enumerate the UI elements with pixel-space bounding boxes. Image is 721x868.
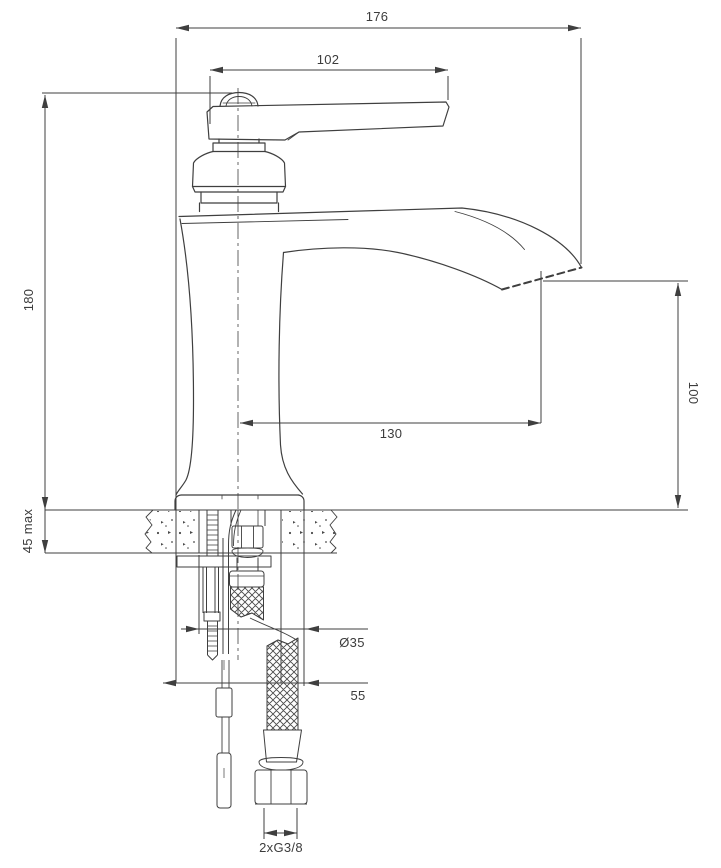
handle-length-label: 102	[317, 52, 340, 67]
dim-body-height	[42, 93, 232, 553]
body-height-label: 180	[21, 289, 36, 312]
dim-hose-thread	[264, 808, 297, 839]
dim-spout-height	[543, 281, 688, 508]
aerator-face	[502, 268, 582, 290]
hose-ferrule-top	[230, 571, 265, 587]
handle-lever	[207, 102, 449, 140]
dim-spout-reach	[240, 271, 541, 426]
spout-reach-label: 130	[380, 426, 403, 441]
drain-rod	[216, 510, 241, 808]
braided-hose-lower	[255, 638, 307, 804]
dimension-labels: 176 102 180 45 max 100 130 Ø35 55 2xG3/8	[20, 9, 701, 855]
base-flange	[175, 495, 304, 510]
countertop	[45, 510, 688, 553]
hose-thread-label: 2xG3/8	[259, 840, 303, 855]
handle-dome	[220, 93, 258, 107]
mounting-washer	[177, 556, 271, 567]
dim-deck-thickness	[42, 540, 48, 553]
braided-hose-upper	[231, 587, 299, 641]
faucet-technical-drawing: 176 102 180 45 max 100 130 Ø35 55 2xG3/8	[0, 0, 721, 868]
dim-base-diameter	[163, 680, 368, 686]
shank-nut	[232, 526, 263, 548]
mounting-stud	[203, 510, 220, 660]
supply-shank	[230, 510, 266, 587]
spout-height-label: 100	[686, 382, 701, 405]
body-left-edge	[176, 219, 194, 495]
dimension-lines	[42, 25, 688, 839]
faucet-body	[175, 93, 582, 510]
hole-diameter-label: Ø35	[339, 635, 364, 650]
under-counter-assembly	[177, 510, 307, 808]
body-right-edge	[279, 253, 303, 495]
deck-thickness-label: 45 max	[20, 509, 35, 554]
spout-under-edge	[284, 248, 503, 290]
dim-total-width	[176, 25, 581, 683]
hose-nut	[255, 770, 307, 804]
dim-handle-length	[210, 67, 448, 124]
drawing-svg: 176 102 180 45 max 100 130 Ø35 55 2xG3/8	[0, 0, 721, 868]
total-width-label: 176	[366, 9, 389, 24]
base-diameter-label: 55	[350, 688, 365, 703]
spout-top-edge	[179, 208, 582, 268]
